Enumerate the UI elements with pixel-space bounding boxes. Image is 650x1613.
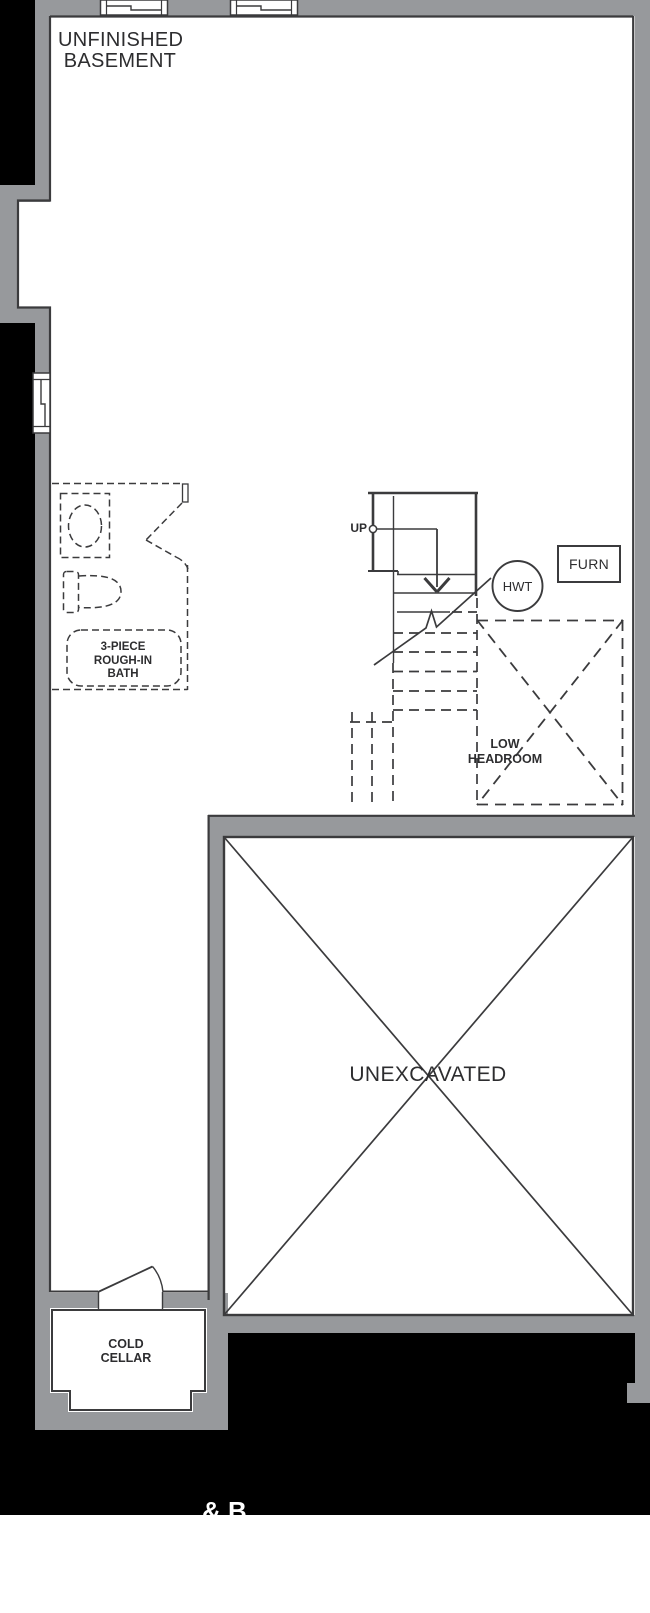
wall-top	[35, 0, 650, 16]
up-start-marker	[369, 525, 376, 532]
cellar-door-leaf	[98, 1267, 153, 1293]
wall-right	[635, 0, 650, 1385]
title-line2: BASEMENT	[58, 51, 182, 72]
door-swing-icon	[146, 503, 188, 569]
furnace-label: FURN	[558, 556, 620, 572]
wall-cellar-bottom-right	[193, 1393, 228, 1430]
exterior-black-bottom-band: & B	[0, 1430, 650, 1515]
bath-label: 3-PIECE ROUGH-IN BATH	[73, 641, 173, 682]
stair-treads-dashed	[350, 598, 477, 806]
wall-unexcavated-bottom	[208, 1315, 650, 1333]
cellar-door-arc	[153, 1267, 164, 1293]
up-arrowhead-icon	[425, 578, 450, 592]
low-headroom-area	[477, 620, 623, 805]
wall-left-upper	[35, 0, 50, 185]
wall-right-stub	[627, 1383, 650, 1403]
page-title: UNFINISHED BASEMENT	[58, 30, 182, 72]
toilet-bowl-icon	[79, 576, 121, 608]
basement-floor-plan: & B	[0, 0, 650, 1613]
toilet-tank-icon	[64, 572, 79, 613]
low-headroom-label: LOW HEADROOM	[450, 737, 560, 766]
cold-cellar-label: COLD CELLAR	[76, 1337, 176, 1365]
wall-cellar-bottom-left	[35, 1393, 68, 1430]
bath-door-jamb	[183, 484, 189, 502]
wall-cellar-bottom-center	[68, 1412, 193, 1430]
wall-left-main	[35, 323, 50, 1293]
wall-bay-top	[0, 185, 50, 202]
exterior-black-bottom-right	[228, 1333, 650, 1430]
wall-unexcavated-top	[208, 815, 650, 837]
wall-bay-left	[0, 202, 18, 308]
exterior-black-left	[0, 323, 35, 1430]
break-line	[374, 578, 491, 665]
hwt-label: HWT	[492, 579, 543, 594]
stairs-up-label: UP	[341, 521, 367, 535]
sink-icon	[69, 505, 102, 547]
builder-logo-fragment: & B	[202, 1496, 247, 1515]
wall-unexcavated-left	[208, 837, 225, 1317]
cross-diagonals	[477, 620, 623, 805]
unexcavated-label: UNEXCAVATED	[328, 1063, 528, 1087]
wall-bay-bottom	[0, 307, 50, 323]
exterior-black-top-left	[0, 0, 35, 185]
wall-cellar-left	[35, 1293, 50, 1393]
title-line1: UNFINISHED	[58, 30, 182, 51]
vanity-outline	[61, 494, 110, 558]
